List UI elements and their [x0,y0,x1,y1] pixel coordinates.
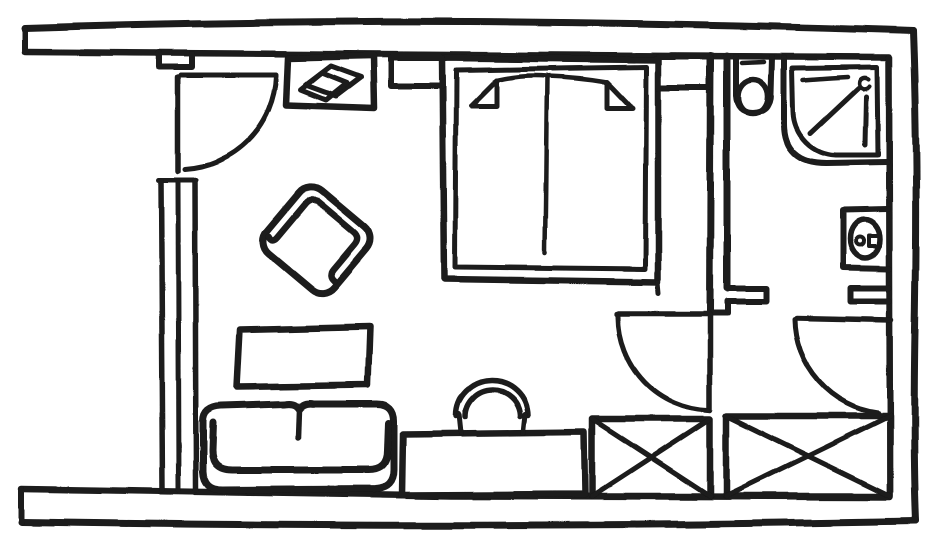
bed-outline [442,58,658,282]
bathroom-wall-left-line [710,56,711,313]
toilet-bowl [738,80,768,114]
floor-plan-svg [0,0,940,548]
desk-chair-back-inner [465,390,520,417]
bed-corner-overshoot [658,282,659,293]
pillow-right [607,82,632,108]
sink-tap [869,236,880,246]
floor-plan-canvas [0,0,940,548]
bottom-wall-outer-edge [22,521,916,525]
nightstand-left [391,58,442,86]
mattress-outline [455,67,646,269]
bathroom-wall-right-stub [851,288,889,301]
desk-chair-right-leg [523,414,525,433]
entrance-door-swing-arc [185,76,276,169]
bathroom-door-leaf [797,318,891,320]
shower-hose-line [810,88,858,133]
window-middle-line [178,181,179,490]
coffee-table [237,327,370,387]
window-inner-line [195,181,196,490]
bathroom-door-swing-arc [795,319,878,413]
mattress-divider-line [545,76,547,253]
right-wall-outer-edge [913,31,916,521]
hall-door-swing-arc [618,317,708,410]
bathroom-wall-foot [711,288,766,313]
floor-plan-drawing [22,22,916,525]
pillow-left [471,80,497,106]
shower-head [859,78,869,89]
sink-drain [856,237,864,245]
sofa-cushion-divider [298,409,299,438]
desk [402,432,585,495]
sheet-fold-line [497,76,607,83]
nightstand-right [658,57,710,88]
shower-rail-line [865,96,866,145]
shower-pipe-line [803,77,847,80]
window-outer-line [161,181,163,490]
top-wall-outer-edge [25,22,913,31]
desk-chair-left-leg [459,414,461,433]
toilet-tank-line [742,62,764,63]
